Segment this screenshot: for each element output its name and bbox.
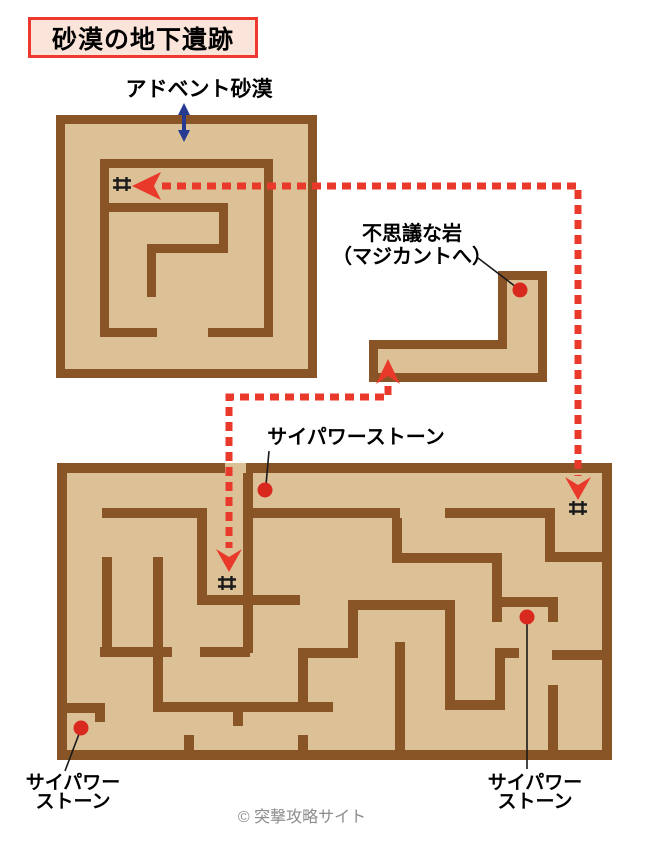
copyright-note: © 突撃攻略サイト [238,803,366,827]
maze-wall [57,750,612,760]
maze-wall [100,203,228,212]
page-title-text: 砂漠の地下遺跡 [52,20,234,56]
maze-wall [208,328,273,337]
label-psi-power-stone-bottom-left: サイパワー ストーン [26,774,121,813]
maze-wall [100,647,172,657]
maze-wall [57,463,225,473]
label-psi-power-stone-top: サイパワーストーン [267,427,445,450]
label-advent-desert: アドベント砂漠 [126,78,273,102]
maze-wall [602,463,612,760]
maze-wall [392,553,500,563]
maze-wall [233,712,243,726]
maze-wall [153,702,333,712]
maze-wall [545,552,607,562]
maze-wall [100,159,109,337]
maze-wall [200,647,250,657]
maze-wall [395,642,405,755]
maze-wall [153,557,163,712]
maze-wall [552,650,607,660]
maze-wall [147,244,228,253]
entrance-arrow-head-up [178,103,190,115]
maze-wall [445,508,555,518]
guide-map-page: 砂漠の地下遺跡 アドベント砂漠 不思議な岩 （マジカントへ） サイパワーストーン… [0,0,652,856]
maze-wall [308,115,317,378]
item-dot-psi-stone-top [258,483,273,498]
maze-wall [197,508,207,605]
maze-wall [548,597,558,622]
label-mystery-rock: 不思議な岩 （マジカントへ） [332,223,492,269]
maze-wall [298,735,308,755]
page-title: 砂漠の地下遺跡 [28,17,258,58]
maze-wall [102,557,112,648]
item-dot-psi-stone-left [74,721,89,736]
maze-wall [100,328,157,337]
maze-wall [548,685,558,755]
maze-wall [100,159,273,168]
maze-wall [56,115,65,378]
item-dot-mystery-rock [513,283,528,298]
maze-wall [246,463,612,473]
maze-wall [348,600,455,610]
maze-wall [56,115,317,124]
item-dot-psi-stone-right [520,610,535,625]
maze-wall [57,463,67,760]
maze-wall [252,508,400,518]
maze-wall [184,735,194,755]
maze-wall [95,703,105,722]
label-psi-power-stone-bottom-right: サイパワー ストーン [488,774,583,813]
maze-wall [445,607,455,710]
maze-wall [102,508,207,518]
maze-wall [56,369,317,378]
maze-wall [147,244,156,297]
maze-wall [492,553,502,622]
maze-wall [243,473,253,653]
